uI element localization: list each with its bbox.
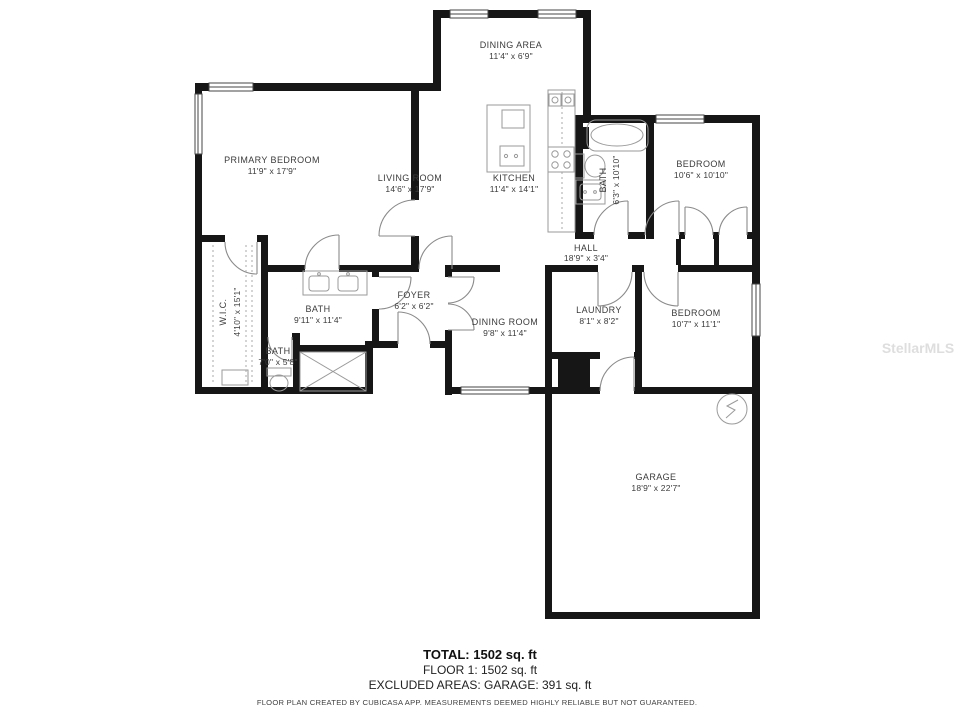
dims-living-room: 14'6" x 17'9" <box>385 184 434 194</box>
stove-icon <box>548 147 574 172</box>
dims-primary-bedroom: 11'9" x 17'9" <box>248 166 297 176</box>
label-dining-room: DINING ROOM <box>472 317 538 327</box>
kitchen-island <box>487 105 530 172</box>
label-laundry: LAUNDRY <box>576 305 622 315</box>
label-bedroom1: BEDROOM <box>676 159 725 169</box>
bathtub-icon <box>587 120 648 151</box>
label-kitchen: KITCHEN <box>493 173 535 183</box>
summary: TOTAL: 1502 sq. ft FLOOR 1: 1502 sq. ft … <box>369 647 592 692</box>
label-primary-bedroom: PRIMARY BEDROOM <box>224 155 320 165</box>
shower-icon <box>300 352 366 391</box>
summary-floor: FLOOR 1: 1502 sq. ft <box>423 663 538 677</box>
label-wic: W.I.C. <box>218 299 228 326</box>
label-garage: GARAGE <box>636 472 677 482</box>
label-foyer: FOYER <box>397 290 430 300</box>
dims-wic: 4'10" x 15'1" <box>232 287 242 336</box>
dims-bath1: 6'3" x 10'10" <box>611 155 621 204</box>
dims-hall: 18'9" x 3'4" <box>564 253 608 263</box>
label-bedroom2: BEDROOM <box>671 308 720 318</box>
label-hall: HALL <box>574 243 598 253</box>
label-bath2: BATH <box>306 304 331 314</box>
watermark: StellarMLS <box>882 340 954 356</box>
double-vanity-icon <box>303 271 367 295</box>
dims-foyer: 6'2" x 6'2" <box>394 301 433 311</box>
dims-garage: 18'9" x 22'7" <box>631 483 680 493</box>
label-bath3: BATH <box>266 346 291 356</box>
dims-bedroom2: 10'7" x 11'1" <box>672 319 721 329</box>
dims-bath3: 7'0" x 5'8" <box>258 357 297 367</box>
windows <box>195 10 760 394</box>
water-heater-icon <box>717 394 747 424</box>
summary-total: TOTAL: 1502 sq. ft <box>423 647 537 662</box>
dims-bedroom1: 10'6" x 10'10" <box>674 170 728 180</box>
summary-excluded: EXCLUDED AREAS: GARAGE: 391 sq. ft <box>369 678 592 692</box>
label-dining-area: DINING AREA <box>480 40 542 50</box>
label-bath1: BATH <box>598 168 608 193</box>
label-living-room: LIVING ROOM <box>378 173 442 183</box>
dims-kitchen: 11'4" x 14'1" <box>490 184 539 194</box>
dims-laundry: 8'1" x 8'2" <box>579 316 618 326</box>
dims-dining-room: 9'8" x 11'4" <box>483 328 527 338</box>
floor-plan-page: DINING AREA 11'4" x 6'9" PRIMARY BEDROOM… <box>0 0 960 720</box>
dims-bath2: 9'11" x 11'4" <box>294 315 342 325</box>
dims-dining-area: 11'4" x 6'9" <box>489 51 533 61</box>
disclaimer: FLOOR PLAN CREATED BY CUBICASA APP. MEAS… <box>257 698 697 707</box>
floor-plan: DINING AREA 11'4" x 6'9" PRIMARY BEDROOM… <box>0 0 960 720</box>
